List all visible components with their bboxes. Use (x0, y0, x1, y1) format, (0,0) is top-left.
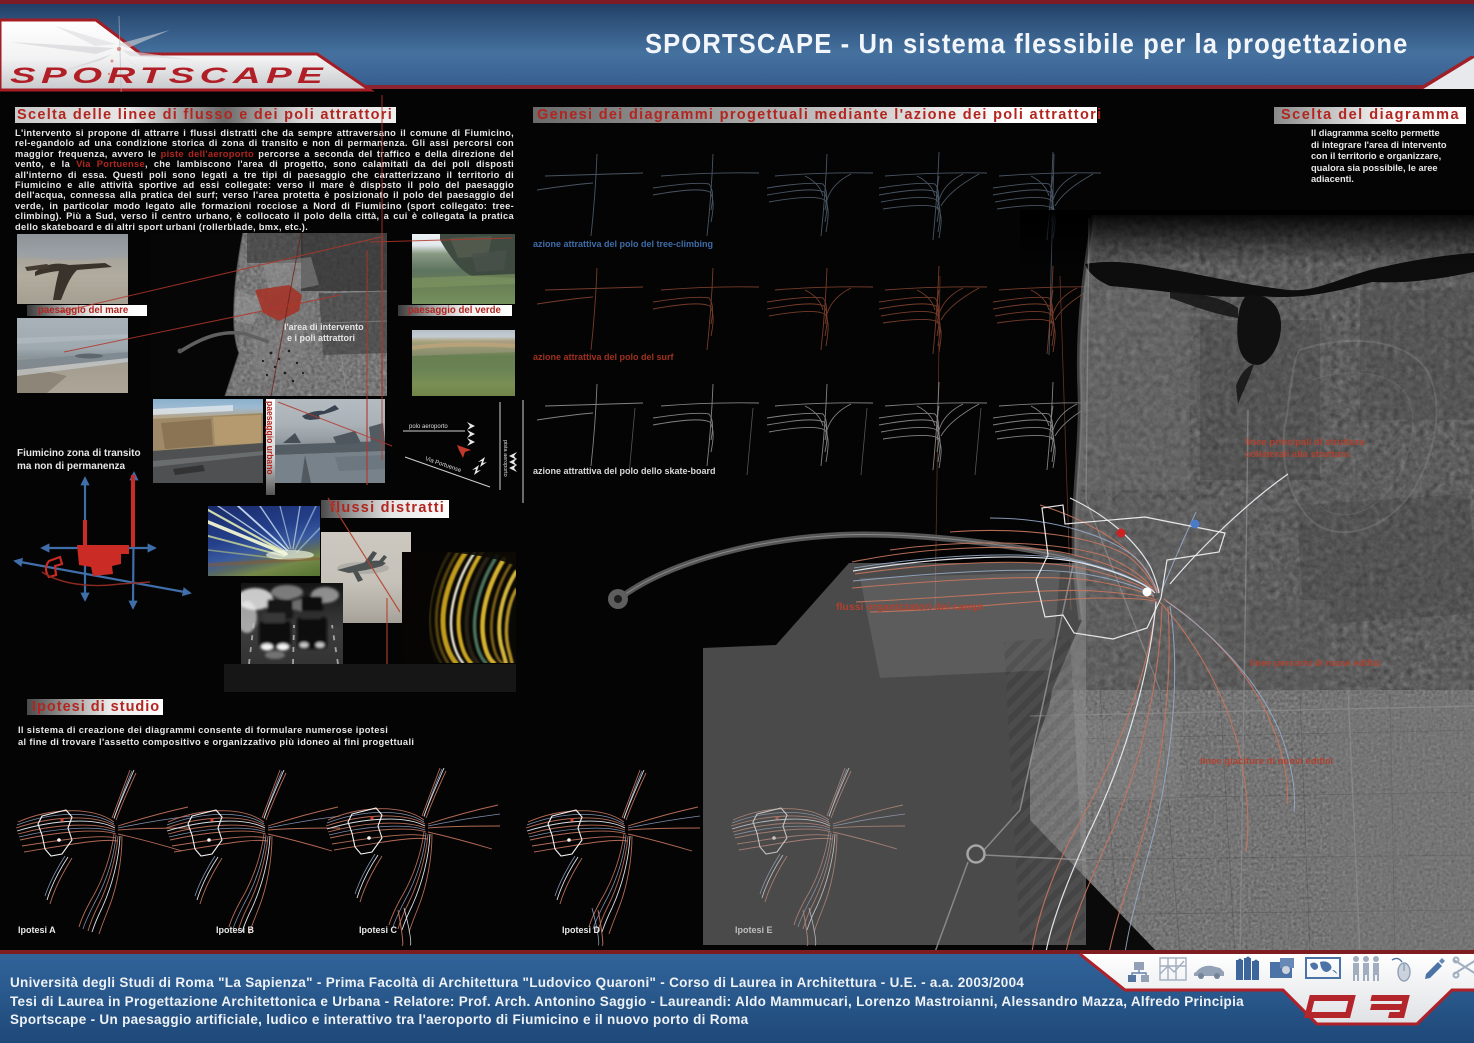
svg-text:collaterali alla struttura: collaterali alla struttura (1245, 449, 1350, 460)
svg-text:polo aeroporto: polo aeroporto (409, 424, 448, 430)
svg-text:pista aeroporto: pista aeroporto (502, 440, 508, 477)
svg-text:flussi organizzatori dei campi: flussi organizzatori dei campi (836, 601, 983, 613)
svg-text:Via Portuense: Via Portuense (424, 456, 462, 474)
svg-text:linee principali di struttura: linee principali di struttura (1245, 437, 1365, 448)
svg-text:linee percorsi di nuovi edific: linee percorsi di nuovi edifici (1250, 658, 1381, 669)
svg-text:SPORTSCAPE: SPORTSCAPE (10, 63, 328, 88)
svg-text:linee giaciture di nuovi edifi: linee giaciture di nuovi edifici (1200, 756, 1333, 767)
